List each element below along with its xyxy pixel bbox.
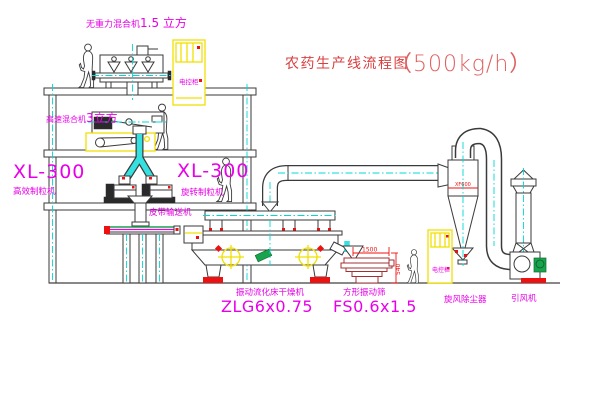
fluid-bed-dryer [184, 211, 347, 283]
induced-draft-fan [510, 252, 546, 283]
label-granulator-left-name: 高效制粒机 [13, 188, 56, 197]
label-granulator-left-model: XL-300 [13, 163, 85, 182]
sieve-dimension-height: 540 [395, 263, 402, 275]
cabinet-2-label: 电控柜 [432, 266, 450, 274]
sieve-dimension-width: 1500 [362, 247, 377, 254]
label-cyclone: 旋风除尘器 [444, 296, 487, 305]
control-cabinet-1: 电控柜 [173, 40, 205, 105]
label-fan: 引风机 [511, 295, 537, 304]
cabinet-1-label: 电控柜 [179, 77, 199, 86]
label-belt-conveyor: 皮带输送机 [149, 209, 192, 218]
vibrating-sieve: 1500 540 [341, 246, 402, 283]
exhaust-duct [262, 164, 452, 212]
label-no-gravity-mixer: 无重力混合机1.5 立方 [86, 14, 187, 30]
label-sieve-model: FS0.6x1.5 [333, 299, 417, 315]
diagram-title-capacity: （500kg/h） [390, 46, 532, 78]
flow-diagram-canvas: 电控柜 [0, 0, 600, 403]
label-granulator-right-model: XL-300 [177, 162, 249, 181]
label-high-speed-mixer: 高速混合机3立方 [46, 109, 118, 125]
person-figure [79, 44, 94, 88]
person-figure [407, 250, 418, 283]
label-granulator-right-name: 旋转制粒机 [181, 189, 224, 198]
control-cabinet-2: 电控柜 [428, 230, 452, 283]
cyclone-dust-collector: XF600 [448, 136, 521, 266]
label-dryer-model: ZLG6x0.75 [221, 299, 313, 315]
